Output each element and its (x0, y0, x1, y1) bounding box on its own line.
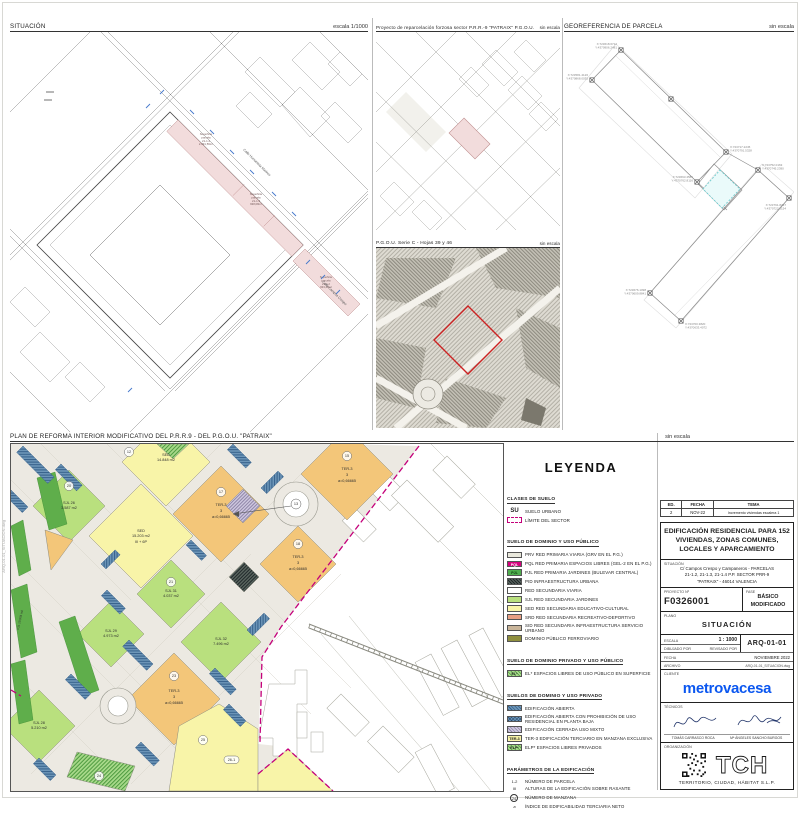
legend-label: LÍMITE DEL SECTOR (525, 518, 570, 523)
panel-reparcelacion-scale: sin escala (540, 25, 560, 30)
central-block (37, 112, 303, 378)
project-number-cell: PROYECTO Nº F0326001 (661, 588, 742, 611)
signature-1-icon (672, 711, 720, 733)
legend-item: SID RED SECUNDARIA INFRAESTRUCTURA SERVI… (507, 623, 655, 633)
revision-fecha: NOV-22 (682, 509, 714, 517)
panel-situacion-header: SITUACIÓN escala 1/1000 (10, 18, 368, 32)
fase-cell: FASE BÁSICO MODIFICADO (742, 588, 793, 611)
divider-vertical-1 (372, 18, 373, 430)
ter3-swatch: TER-3 (507, 735, 522, 742)
highlighted-parcel (449, 118, 490, 159)
reparcelacion-map (376, 32, 560, 230)
svg-text:Y:4370722.6154: Y:4370722.6154 (764, 207, 786, 211)
svg-text:12: 12 (127, 450, 131, 454)
panel-reparcelacion-header: Proyecto de reparcelación forzosa sector… (376, 18, 560, 32)
revision-ed: 2 (661, 509, 682, 517)
archivo-label: ARCHIVO (664, 664, 680, 668)
coordinate-markers (590, 48, 791, 323)
legend-heading: PARÁMETROS DE LA EDIFICACIÓN (507, 768, 594, 775)
legend-heading: SUELO DE DOMINIO Y USO PÚBLICO (507, 540, 599, 547)
legend-code: SU (507, 508, 522, 514)
legend-label: SRD RED SECUNDARIA RECREATIVO-DEPORTIVO (525, 615, 635, 620)
address-section: SITUACIÓN C/ Campos Crespo y Campaneros … (661, 559, 793, 588)
plano-section: PLANO SITUACIÓN (661, 611, 793, 634)
legend-section-privado: SUELOS DE DOMINIO Y USO PRIVADO EDIFICAC… (507, 684, 655, 751)
roundabout (413, 379, 443, 409)
project-title: EDIFICACIÓN RESIDENCIAL PARA 152 VIVIEND… (661, 523, 793, 559)
svg-text:Y:4370791.5328: Y:4370791.5328 (730, 149, 752, 153)
panel-reparcelacion-title: Proyecto de reparcelación forzosa sector… (376, 25, 534, 30)
sjl-swatch (507, 596, 522, 603)
legend-heading: CLASES DE SUELO (507, 497, 555, 504)
legend-label: NÚMERO DE PARCELA (525, 779, 575, 784)
legend-label: PRV RED PRIMARIA VIARIA (GRV EN EL P.G.) (525, 552, 623, 557)
panel-reparcelacion: Proyecto de reparcelación forzosa sector… (376, 18, 560, 232)
legend-item: ELP*ELP* ESPACIOS LIBRES PRIVADOS (507, 744, 655, 751)
legend-item: PID INFRAESTRUCTURA URBANA (507, 578, 655, 585)
legend-item: EL*EL* ESPACIOS LIBRES DE USO PÚBLICO EN… (507, 670, 655, 677)
limite-swatch (507, 517, 522, 524)
legend-item: IIIALTURAS DE LA EDIFICACIÓN SOBRE RASAN… (507, 786, 655, 791)
legend-label: RED SECUNDARIA VIARIA (525, 588, 582, 593)
revision-col-tema: TEMA (714, 501, 794, 509)
ferroviario-swatch (507, 635, 522, 642)
svg-text:14.848 m2: 14.848 m2 (157, 458, 175, 462)
tecnico-name: TOMÁS CARRASCO ROCA (672, 736, 715, 740)
title-block: ED. FECHA TEMA 2 NOV-22 Incremento vivie… (660, 500, 794, 790)
dibujado-label: DIBUJADO POR (664, 647, 691, 651)
legend-label: ÍNDICE DE EDIFICABILIDAD TERCIARIA NETO (525, 804, 624, 809)
svg-text:26-1: 26-1 (228, 758, 236, 762)
escala-row: ESCALA 1 : 1000 (661, 635, 740, 645)
legend-section-clases: CLASES DE SUELO SU SUELO URBANO LÍMITE D… (507, 487, 655, 523)
legend-label: NÚMERO DE MANZANA (525, 795, 576, 800)
scale-left: ESCALA 1 : 1000 DIBUJADO POR REVISADO PO… (661, 635, 740, 652)
panel-pgou: P.G.O.U. Serie C - Hojas 39 y 46 sin esc… (376, 234, 560, 430)
legend-label: EL* ESPACIOS LIBRES DE USO PÚBLICO EN SU… (525, 671, 651, 676)
address-line: "PATRAIX" - 46014 VALENCIA (664, 579, 790, 586)
pgou-map (376, 248, 560, 428)
svg-text:SJL 28: SJL 28 (33, 721, 45, 725)
tecnicos-section: TÉCNICOS TOMÁS CARRASCO ROCA Mª ÁNGELES … (661, 702, 793, 742)
svg-text:TER-3: TER-3 (342, 467, 353, 471)
legend: LEYENDA CLASES DE SUELO SU SUELO URBANO … (507, 452, 655, 816)
legend-item: 24NÚMERO DE MANZANA (507, 794, 655, 802)
qr-code-icon (682, 753, 706, 777)
svg-text:18: 18 (296, 542, 300, 546)
revision-table: ED. FECHA TEMA 2 NOV-22 Incremento vivie… (660, 500, 794, 517)
svg-text:a=0,66665: a=0,66665 (212, 515, 230, 519)
legend-section-privado-publico: SUELO DE DOMINIO PRIVADO Y USO PÚBLICO E… (507, 649, 655, 677)
legend-item: SRD RED SECUNDARIA RECREATIVO-DEPORTIVO (507, 614, 655, 621)
svg-text:938,08m²: 938,08m² (250, 202, 262, 206)
legend-item: RED SECUNDARIA VIARIA (507, 587, 655, 594)
signature-2-icon (735, 711, 783, 733)
legend-label: PID INFRAESTRUCTURA URBANA (525, 579, 599, 584)
svg-text:SJL 26: SJL 26 (63, 501, 75, 505)
dibujado-row: DIBUJADO POR REVISADO POR (661, 645, 740, 652)
panel-georeferencia-scale: sin escala (769, 24, 794, 30)
divider-vertical-2 (562, 18, 563, 430)
legend-label: SED RED SECUNDARIA EDUCATIVO-CULTURAL (525, 606, 629, 611)
panel-pgou-title: P.G.O.U. Serie C - Hojas 39 y 46 (376, 241, 452, 246)
svg-text:3: 3 (346, 473, 348, 477)
revision-col-fecha: FECHA (682, 501, 714, 509)
legend-label: ALTURAS DE LA EDIFICACIÓN SOBRE RASANTE (525, 786, 631, 791)
elp-swatch: ELP* (507, 744, 522, 751)
legend-title: LEYENDA (507, 460, 655, 475)
tecnico-name: Mª ÁNGELES SANCHO BURGOS (730, 736, 782, 740)
svg-text:3: 3 (173, 695, 175, 699)
legend-heading: SUELO DE DOMINIO PRIVADO Y USO PÚBLICO (507, 659, 623, 666)
legend-item: TER-3TER-3 EDIFICACIÓN TERCIARIO EN MANZ… (507, 735, 655, 742)
legend-item: SJL RED SECUNDARIA JARDINES (507, 596, 655, 603)
legend-item: SED RED SECUNDARIA EDUCATIVO-CULTURAL (507, 605, 655, 612)
fase-value: BÁSICO (746, 594, 790, 602)
svg-text:a=0,66665: a=0,66665 (338, 479, 356, 483)
archivo-row: ARCHIVO ARQ-01-01_SITUACION.dwg (661, 661, 793, 669)
panel-plan-header: PLAN DE REFORMA INTERIOR MODIFICATIVO DE… (10, 428, 794, 442)
svg-text:Y:4370745.2390: Y:4370745.2390 (762, 167, 784, 171)
svg-text:TCH: TCH (716, 752, 768, 778)
organizacion-name: TERRITORIO, CIUDAD, HÁBITAT S.L.P. (664, 780, 790, 787)
signatures (664, 709, 790, 733)
legend-heading: SUELOS DE DOMINIO Y USO PRIVADO (507, 694, 602, 701)
svg-text:a=0,66665: a=0,66665 (289, 567, 307, 571)
panel-situacion: SITUACIÓN escala 1/1000 (10, 18, 368, 432)
archivo-value: ARQ-01-01_SITUACION.dwg (745, 664, 790, 668)
legend-item: PRV RED PRIMARIA VIARIA (GRV EN EL P.G.) (507, 552, 655, 559)
panel-situacion-title: SITUACIÓN (10, 23, 46, 30)
georeferencia-map: X:723618.6712 Y:4370906.2481 X:723581.41… (564, 32, 794, 432)
svg-text:17: 17 (219, 490, 223, 494)
street-label-ne: Calle Humanista Mariner (242, 148, 272, 178)
revisado-label: REVISADO POR (710, 647, 737, 651)
el-swatch: EL* (507, 670, 522, 677)
legend-label: TER-3 EDIFICACIÓN TERCIARIO EN MANZANA E… (525, 736, 652, 741)
legend-label: SUELO URBANO (525, 509, 561, 514)
address-line: 21-1.2, 21-1.3, 21-1.4 P.P. SECTOR PRR-9 (664, 572, 790, 579)
legend-label: EDIFICACIÓN ABIERTA CON PROHIBICIÓN DE U… (525, 714, 655, 724)
gray-patch (386, 92, 446, 152)
svg-text:SJL 29: SJL 29 (105, 629, 117, 633)
project-number: F0326001 (664, 596, 739, 607)
revision-tema: Incremento viviendas escalera 1 (714, 509, 794, 517)
legend-section-publico: SUELO DE DOMINIO Y USO PÚBLICO PRV RED P… (507, 530, 655, 641)
legend-item: 1-2NÚMERO DE PARCELA (507, 779, 655, 784)
parcel-highlight-cyan (703, 170, 740, 208)
legend-item: EDIFICACIÓN ABIERTA (507, 705, 655, 712)
svg-text:TER-3: TER-3 (293, 555, 304, 559)
revision-header-row: ED. FECHA TEMA (661, 501, 794, 509)
pjl-swatch: PJL (507, 569, 522, 576)
panel-plan-header-row: PLAN DE REFORMA INTERIOR MODIFICATIVO DE… (10, 428, 794, 442)
address-line: C/ Campos Crespo y Campaneros - PARCELAS (664, 566, 790, 573)
situacion-map: Superficie parcela 21-1.4 2.091,56m² Sup… (10, 32, 368, 432)
drawing-sheet: ARQ-01-01_SITUACION.dwg SITUACIÓN escala… (0, 0, 800, 800)
svg-text:3: 3 (297, 561, 299, 565)
svg-text:Y:4370762.8116: Y:4370762.8116 (671, 179, 693, 183)
prv-swatch (507, 552, 522, 559)
legend-item: LÍMITE DEL SECTOR (507, 517, 655, 524)
alturas-symbol: III (507, 786, 522, 791)
svg-text:4.973 m2: 4.973 m2 (103, 634, 119, 638)
svg-text:SJL 32: SJL 32 (215, 637, 227, 641)
legend-item: aÍNDICE DE EDIFICABILIDAD TERCIARIA NETO (507, 804, 655, 809)
legend-label: SID RED SECUNDARIA INFRAESTRUCTURA SERVI… (525, 623, 655, 633)
manzana-symbol: 24 (510, 794, 518, 802)
parcel-outline (579, 44, 794, 328)
plot-stamp: ARQ-01-01_SITUACION.dwg (1, 520, 6, 573)
indice-symbol: a (507, 804, 522, 809)
panel-plan-scale: sin escala (665, 434, 690, 440)
svg-text:Y:4370868.0035: Y:4370868.0035 (566, 77, 588, 81)
escala-value: 1 : 1000 (719, 637, 737, 643)
svg-text:7.496 m2: 7.496 m2 (213, 642, 229, 646)
svg-text:a=0,66665: a=0,66665 (165, 701, 183, 705)
svg-text:21: 21 (169, 580, 173, 584)
svg-text:SED: SED (162, 453, 170, 457)
svg-text:Y:4370609.8841: Y:4370609.8841 (624, 292, 646, 296)
legend-item: EDIFICACIÓN CERRADA USO MIXTO (507, 726, 655, 733)
legend-label: EDIFICACIÓN ABIERTA (525, 706, 575, 711)
legend-item: EDIFICACIÓN ABIERTA CON PROHIBICIÓN DE U… (507, 714, 655, 724)
legend-item: DOMINIO PÚBLICO FERROVIARIO (507, 635, 655, 642)
panel-georeferencia: GEOREFERENCIA DE PARCELA sin escala (564, 18, 794, 432)
svg-text:24: 24 (97, 774, 101, 778)
pql-swatch: PQL (507, 561, 522, 568)
map-key-marks (44, 92, 54, 100)
title-block-main: EDIFICACIÓN RESIDENCIAL PARA 152 VIVIEND… (660, 522, 794, 790)
drawing-code-cell: ARQ-01-01 (740, 635, 793, 652)
cliente-section: CLIENTE metrovacesa (661, 669, 793, 702)
svg-text:13: 13 (294, 502, 298, 506)
legend-label: ELP* ESPACIOS LIBRES PRIVADOS (525, 745, 602, 750)
svg-text:23: 23 (172, 674, 176, 678)
panel-pgou-header: P.G.O.U. Serie C - Hojas 39 y 46 sin esc… (376, 234, 560, 248)
panel-plan-title: PLAN DE REFORMA INTERIOR MODIFICATIVO DE… (10, 433, 272, 440)
drawing-code: ARQ-01-01 (747, 640, 786, 647)
legend-item: SU SUELO URBANO (507, 508, 655, 514)
legend-label: DOMINIO PÚBLICO FERROVIARIO (525, 636, 599, 641)
revision-col-ed: ED. (661, 501, 682, 509)
svg-text:5.210 m2: 5.210 m2 (31, 726, 47, 730)
panel-georeferencia-header: GEOREFERENCIA DE PARCELA sin escala (564, 18, 794, 32)
svg-text:4.037 m2: 4.037 m2 (163, 594, 179, 598)
escala-label: ESCALA (664, 639, 678, 643)
cerrada-swatch (507, 726, 522, 733)
svg-text:TER-3: TER-3 (216, 503, 227, 507)
organizacion-logos: TCH (664, 749, 790, 780)
abierta-pb-swatch (507, 716, 522, 723)
fecha-value: NOVIEMBRE 2022 (754, 655, 790, 660)
svg-text:20: 20 (67, 484, 71, 488)
sid-swatch (507, 625, 522, 632)
svg-text:III + 6P: III + 6P (135, 540, 148, 544)
legend-label: PQL RED PRIMARIA ESPACIOS LIBRES (GEL-2 … (525, 561, 652, 566)
proyecto-label: PROYECTO Nº (664, 590, 739, 594)
fecha-row: FECHA NOVIEMBRE 2022 (661, 652, 793, 661)
legend-item: PJLPJL RED PRIMARIA JARDINES (BULEVAR CE… (507, 569, 655, 576)
coordinate-labels: X:723618.6712 Y:4370906.2481 X:723581.41… (566, 42, 786, 330)
viaria-swatch (507, 587, 522, 594)
fase-value: MODIFICADO (746, 602, 790, 610)
panel-situacion-scale: escala 1/1000 (333, 24, 368, 30)
legend-section-parametros: PARÁMETROS DE LA EDIFICACIÓN 1-2NÚMERO D… (507, 758, 655, 810)
pid-swatch (507, 578, 522, 585)
scale-section: ESCALA 1 : 1000 DIBUJADO POR REVISADO PO… (661, 634, 793, 652)
svg-text:2.091,56m²: 2.091,56m² (199, 142, 213, 146)
project-number-section: PROYECTO Nº F0326001 FASE BÁSICO MODIFIC… (661, 587, 793, 611)
plano-value: SITUACIÓN (664, 618, 790, 632)
plan-map-container: SED 14.848 m2 SJL 26 3.587 m2 SED 15.203… (10, 443, 504, 792)
panel-pgou-scale: sin escala (540, 241, 560, 246)
tecnicos-names: TOMÁS CARRASCO ROCA Mª ÁNGELES SANCHO BU… (664, 734, 790, 740)
abierta-swatch (507, 705, 522, 712)
svg-text:15: 15 (345, 454, 349, 458)
parcela-symbol: 1-2 (507, 779, 522, 784)
fecha-label: FECHA (664, 656, 676, 660)
sed-swatch (507, 605, 522, 612)
revision-row: 2 NOV-22 Incremento viviendas escalera 1 (661, 509, 794, 517)
tch-logo: TCH (714, 752, 772, 778)
legend-item: PQLPQL RED PRIMARIA ESPACIOS LIBRES (GEL… (507, 561, 655, 568)
legend-label: SJL RED SECUNDARIA JARDINES (525, 597, 598, 602)
legend-label: EDIFICACIÓN CERRADA USO MIXTO (525, 727, 604, 732)
svg-text:3: 3 (220, 509, 222, 513)
svg-text:TER-3: TER-3 (169, 689, 180, 693)
svg-text:Y:4370906.2481: Y:4370906.2481 (595, 46, 617, 50)
divider-vertical-3 (657, 433, 658, 790)
svg-text:SJL 31: SJL 31 (165, 589, 177, 593)
legend-label: PJL RED PRIMARIA JARDINES (BULEVAR CENTR… (525, 570, 638, 575)
metrovacesa-logo: metrovacesa (664, 676, 790, 700)
organizacion-section: ORGANIZACIÓN (661, 742, 793, 789)
svg-text:15.203 m2: 15.203 m2 (132, 534, 150, 538)
svg-text:Y:4370633.4072: Y:4370633.4072 (685, 326, 707, 330)
plan-map: SED 14.848 m2 SJL 26 3.587 m2 SED 15.203… (11, 444, 503, 791)
svg-text:25: 25 (201, 738, 205, 742)
panel-georeferencia-title: GEOREFERENCIA DE PARCELA (564, 23, 663, 30)
svg-text:SED: SED (137, 529, 145, 533)
svg-text:3.587 m2: 3.587 m2 (61, 506, 77, 510)
srd-swatch (507, 614, 522, 621)
